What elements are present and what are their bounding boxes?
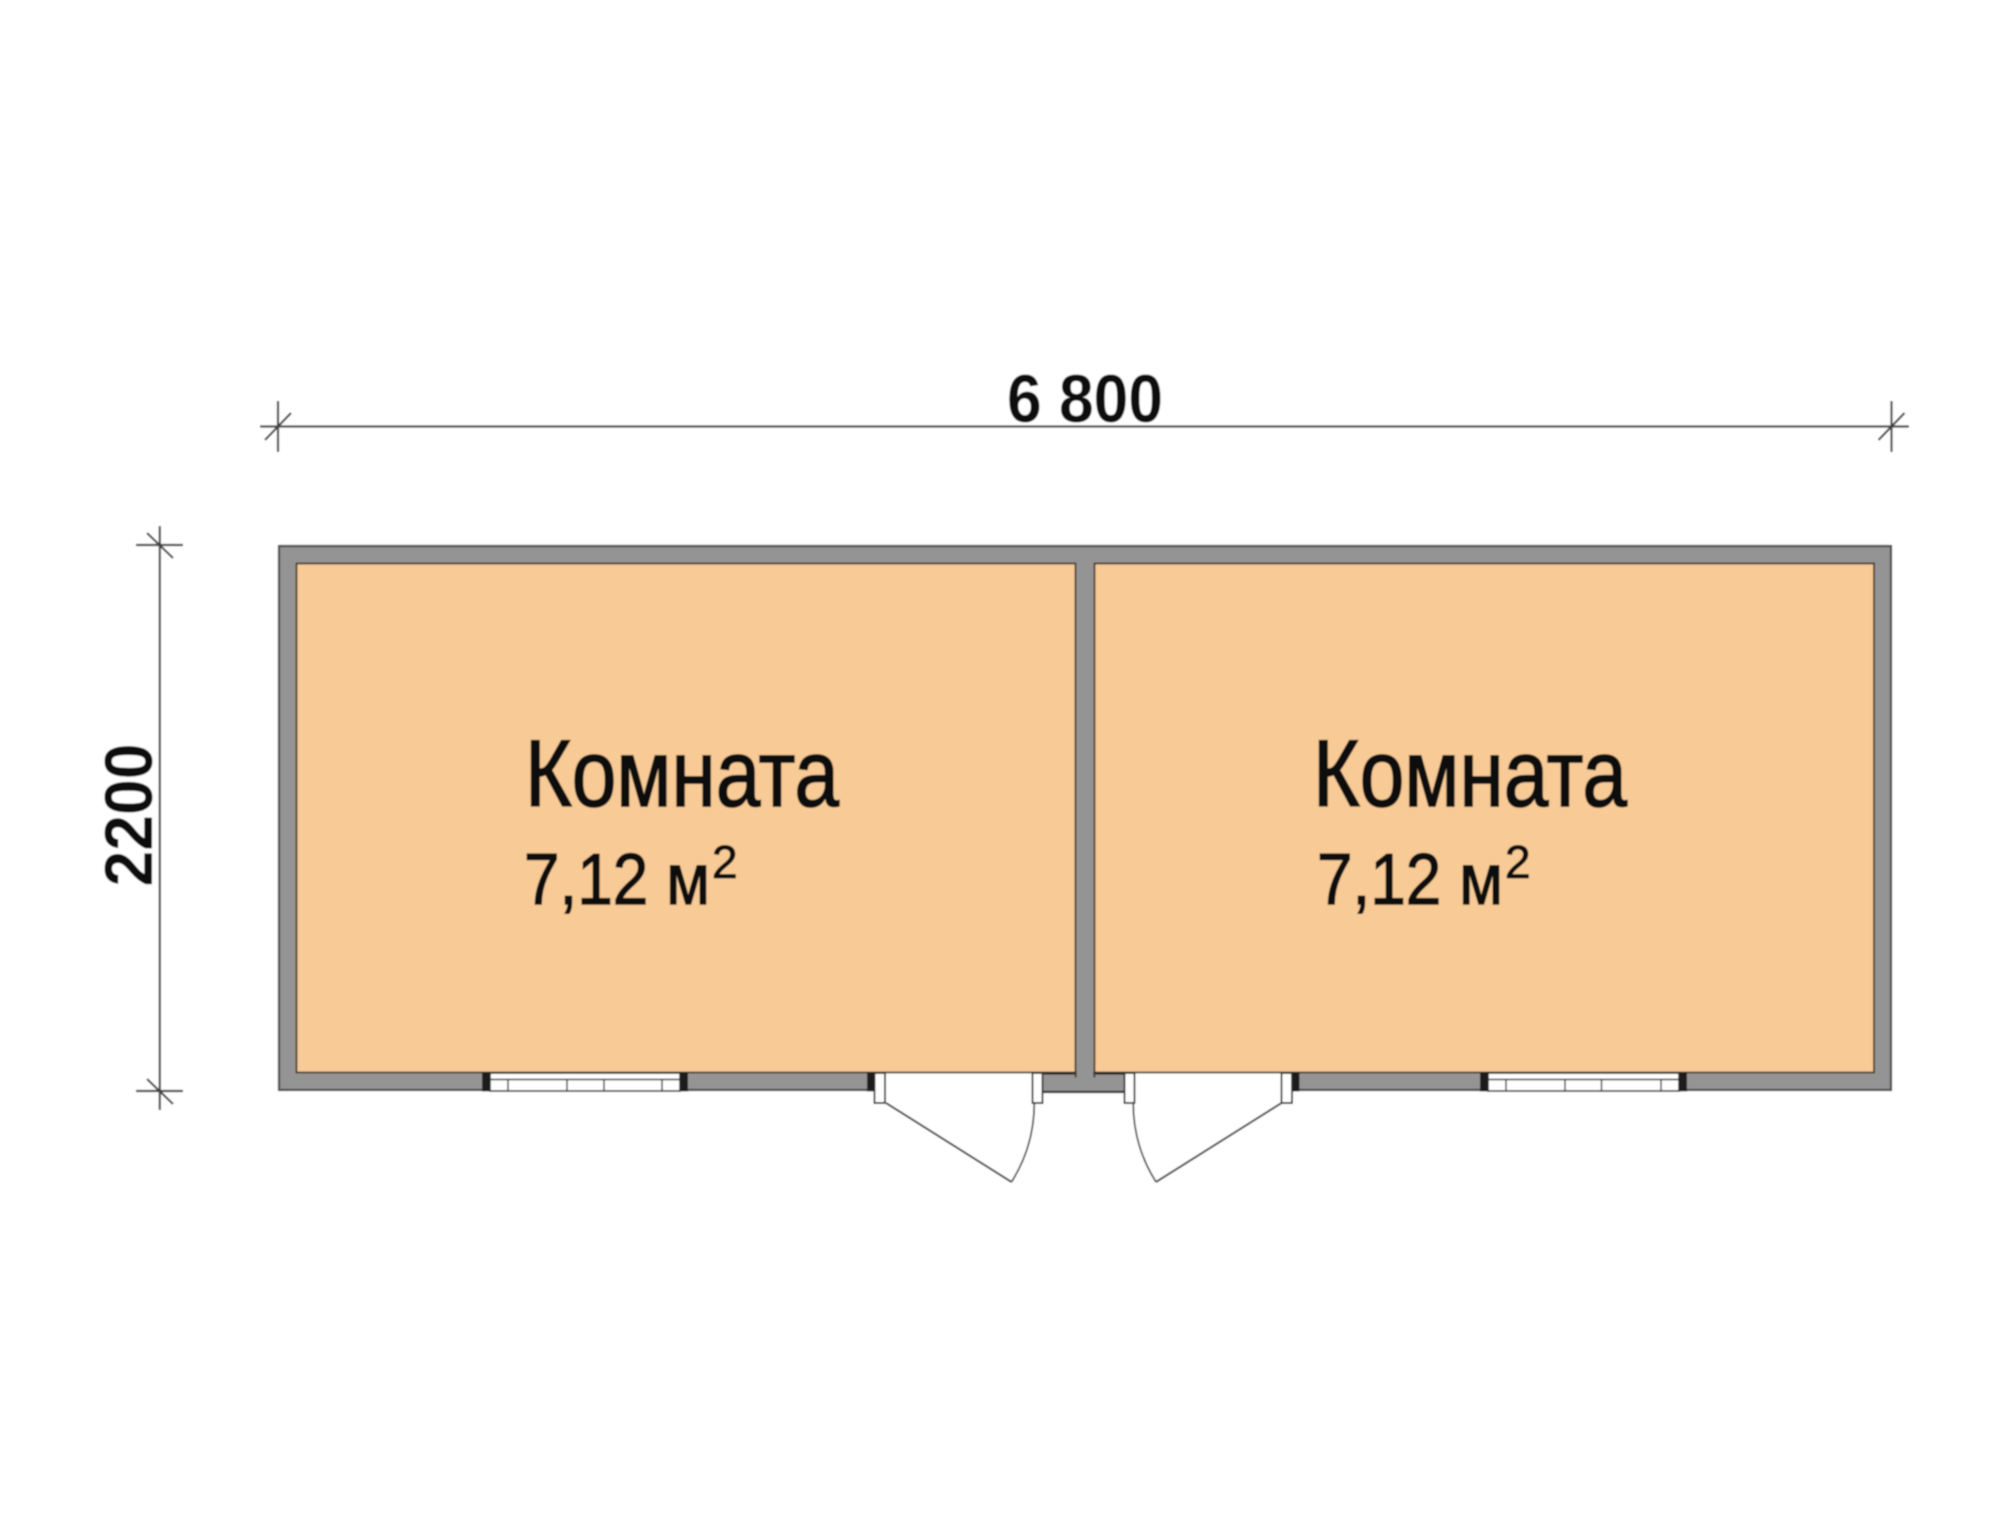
svg-text:2200: 2200 [91,744,167,887]
svg-text:Комната: Комната [525,721,839,827]
svg-text:2: 2 [712,836,738,888]
svg-text:7,12 м: 7,12 м [1317,840,1503,920]
svg-text:6 800: 6 800 [1007,361,1163,437]
svg-text:2: 2 [1505,836,1531,888]
svg-text:Комната: Комната [1313,721,1627,827]
svg-text:7,12 м: 7,12 м [524,840,710,920]
